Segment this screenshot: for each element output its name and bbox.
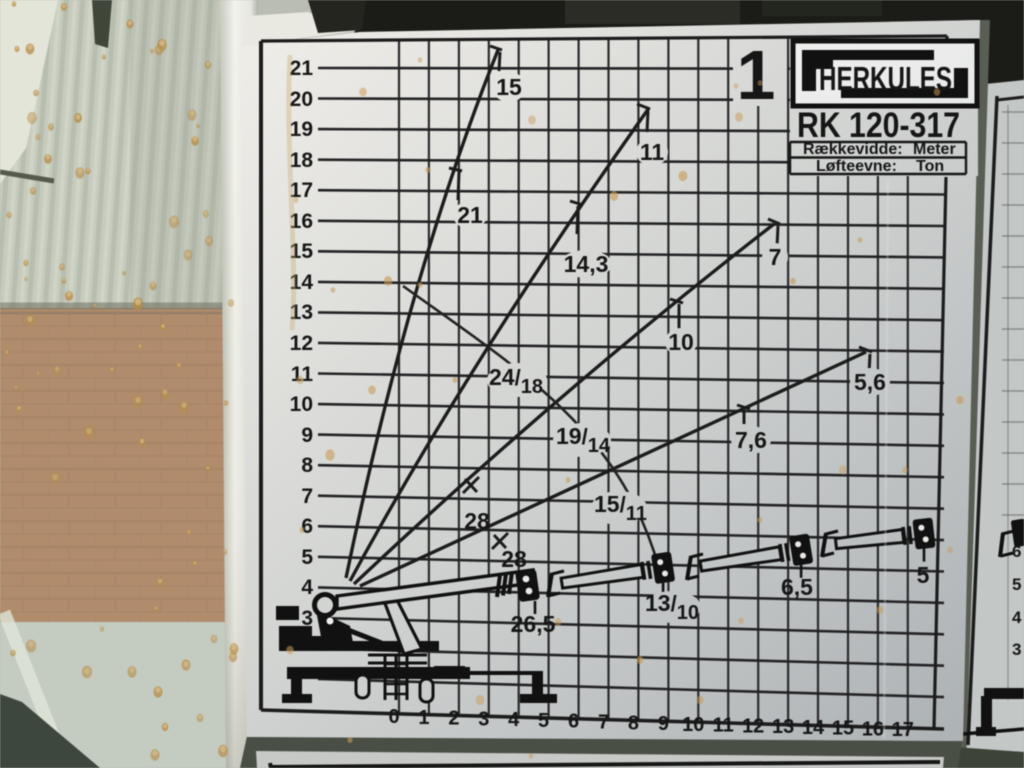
svg-text:3: 3 bbox=[1012, 640, 1021, 659]
svg-text:28: 28 bbox=[501, 546, 527, 572]
svg-text:Rækkevidde:: Rækkevidde: bbox=[803, 141, 903, 158]
svg-text:9: 9 bbox=[301, 424, 313, 447]
svg-text:12: 12 bbox=[290, 332, 313, 355]
svg-text:21: 21 bbox=[457, 202, 483, 228]
svg-text:Ton: Ton bbox=[916, 158, 944, 175]
svg-text:14: 14 bbox=[802, 717, 825, 739]
svg-text:7: 7 bbox=[301, 485, 313, 508]
svg-text:3: 3 bbox=[301, 607, 313, 630]
svg-text:5: 5 bbox=[301, 546, 313, 569]
svg-text:18: 18 bbox=[290, 149, 314, 172]
svg-text:20: 20 bbox=[290, 88, 313, 111]
svg-text:19: 19 bbox=[290, 118, 313, 141]
svg-text:12: 12 bbox=[742, 715, 764, 737]
svg-text:8: 8 bbox=[628, 712, 639, 734]
svg-text:2: 2 bbox=[448, 708, 459, 730]
svg-text:4: 4 bbox=[508, 709, 520, 731]
svg-text:RK 120-317: RK 120-317 bbox=[797, 106, 960, 145]
svg-text:6: 6 bbox=[568, 711, 579, 733]
svg-text:16: 16 bbox=[862, 718, 884, 740]
svg-text:6,5: 6,5 bbox=[781, 574, 813, 600]
svg-text:5,6: 5,6 bbox=[854, 369, 886, 395]
svg-text:10: 10 bbox=[682, 714, 704, 736]
svg-text:28: 28 bbox=[464, 508, 490, 534]
svg-text:10: 10 bbox=[668, 329, 694, 355]
svg-text:13: 13 bbox=[772, 716, 794, 738]
svg-text:3: 3 bbox=[478, 709, 489, 731]
svg-text:4: 4 bbox=[1012, 608, 1022, 627]
svg-text:7: 7 bbox=[598, 712, 609, 734]
svg-text:Meter: Meter bbox=[913, 141, 956, 158]
svg-text:7: 7 bbox=[769, 244, 782, 270]
svg-text:6: 6 bbox=[301, 515, 313, 538]
svg-text:1: 1 bbox=[418, 707, 429, 729]
svg-text:11: 11 bbox=[713, 715, 734, 737]
svg-text:5: 5 bbox=[917, 562, 930, 588]
svg-text:1: 1 bbox=[737, 36, 776, 114]
svg-text:9: 9 bbox=[658, 713, 669, 735]
svg-text:HERKULES: HERKULES bbox=[819, 60, 952, 97]
svg-text:0: 0 bbox=[388, 706, 399, 728]
svg-text:5: 5 bbox=[538, 710, 549, 732]
svg-text:14,3: 14,3 bbox=[564, 251, 609, 277]
svg-text:Løfteevne:: Løfteevne: bbox=[816, 158, 897, 175]
svg-text:17: 17 bbox=[892, 719, 914, 741]
svg-text:4: 4 bbox=[301, 576, 313, 599]
svg-text:15: 15 bbox=[496, 74, 522, 100]
svg-text:21: 21 bbox=[290, 57, 314, 80]
svg-text:10: 10 bbox=[290, 393, 313, 416]
svg-text:5: 5 bbox=[1012, 575, 1021, 594]
svg-text:11: 11 bbox=[640, 139, 665, 165]
svg-text:7,6: 7,6 bbox=[735, 427, 767, 453]
svg-text:15: 15 bbox=[832, 718, 854, 740]
svg-text:26,5: 26,5 bbox=[511, 611, 556, 637]
svg-text:8: 8 bbox=[301, 454, 313, 477]
